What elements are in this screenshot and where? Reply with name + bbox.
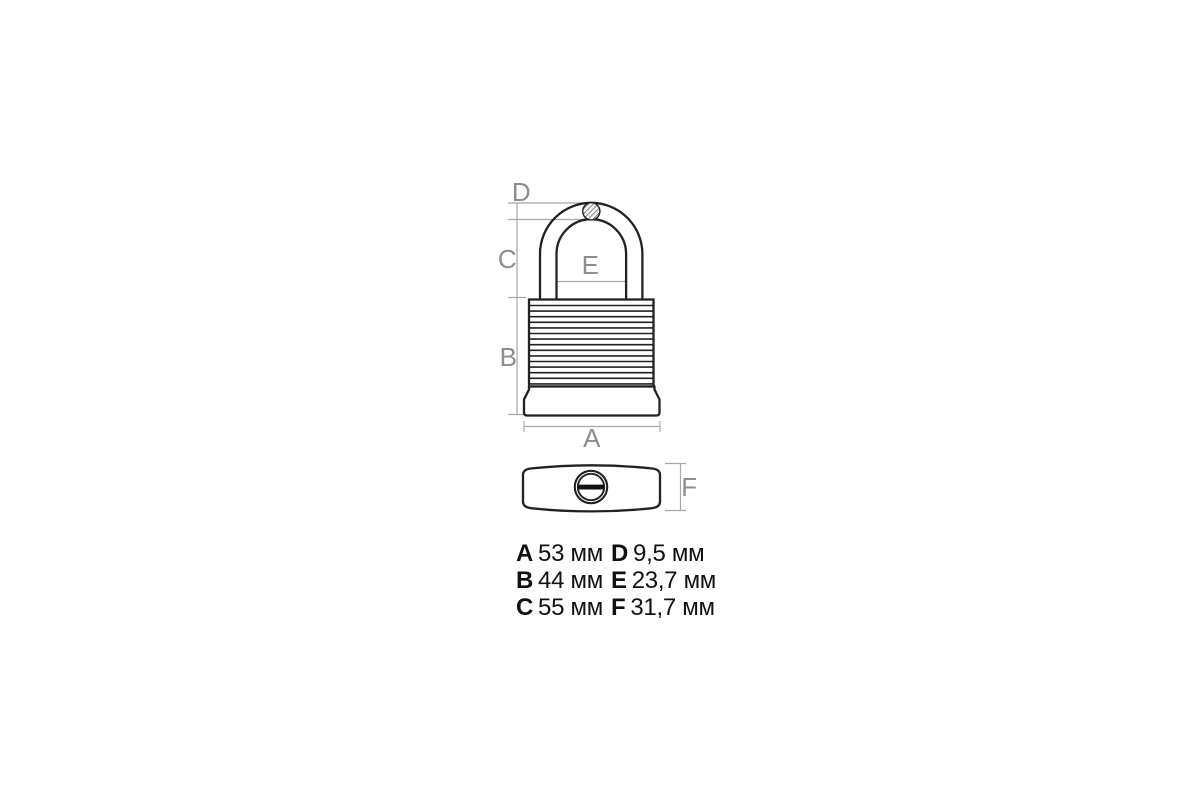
legend-letter: E — [611, 567, 627, 594]
dim-label-c: C — [498, 244, 516, 274]
dim-label-e: E — [582, 250, 599, 280]
legend-value: 9,5 мм — [633, 540, 704, 567]
legend-letter: D — [611, 540, 628, 567]
dim-label-f: F — [681, 472, 696, 502]
padlock-top-view: F — [523, 464, 697, 512]
padlock-diagram: D C B E A F — [0, 0, 1200, 800]
technical-drawing-canvas: D C B E A F A53 мм B44 мм — [0, 0, 1200, 800]
legend-value: 53 мм — [538, 540, 603, 567]
dim-label-b: B — [500, 342, 517, 372]
padlock-front-view: D C B E A — [498, 177, 660, 453]
legend-letter: B — [516, 567, 533, 594]
legend-item-a: A53 мм — [516, 540, 603, 567]
dim-label-a: A — [583, 423, 601, 453]
legend-letter: A — [516, 540, 533, 567]
key-slot — [578, 485, 604, 490]
shackle-cross-section — [583, 203, 600, 220]
legend-item-e: E23,7 мм — [611, 567, 716, 594]
legend-value: 31,7 мм — [630, 594, 714, 621]
legend-item-c: C55 мм — [516, 594, 603, 621]
legend-value: 55 мм — [538, 594, 603, 621]
legend-item-b: B44 мм — [516, 567, 603, 594]
lamination-lines — [529, 306, 654, 384]
dim-label-d: D — [512, 177, 530, 207]
legend-item-d: D9,5 мм — [611, 540, 716, 567]
legend-item-f: F31,7 мм — [611, 594, 716, 621]
legend-value: 44 мм — [538, 567, 603, 594]
legend-letter: F — [611, 594, 625, 621]
lock-base — [524, 387, 660, 416]
dimension-legend-column-2: D9,5 мм E23,7 мм F31,7 мм — [611, 540, 716, 622]
legend-value: 23,7 мм — [632, 567, 716, 594]
dimension-legend-column-1: A53 мм B44 мм C55 мм — [516, 540, 603, 622]
legend-letter: C — [516, 594, 533, 621]
